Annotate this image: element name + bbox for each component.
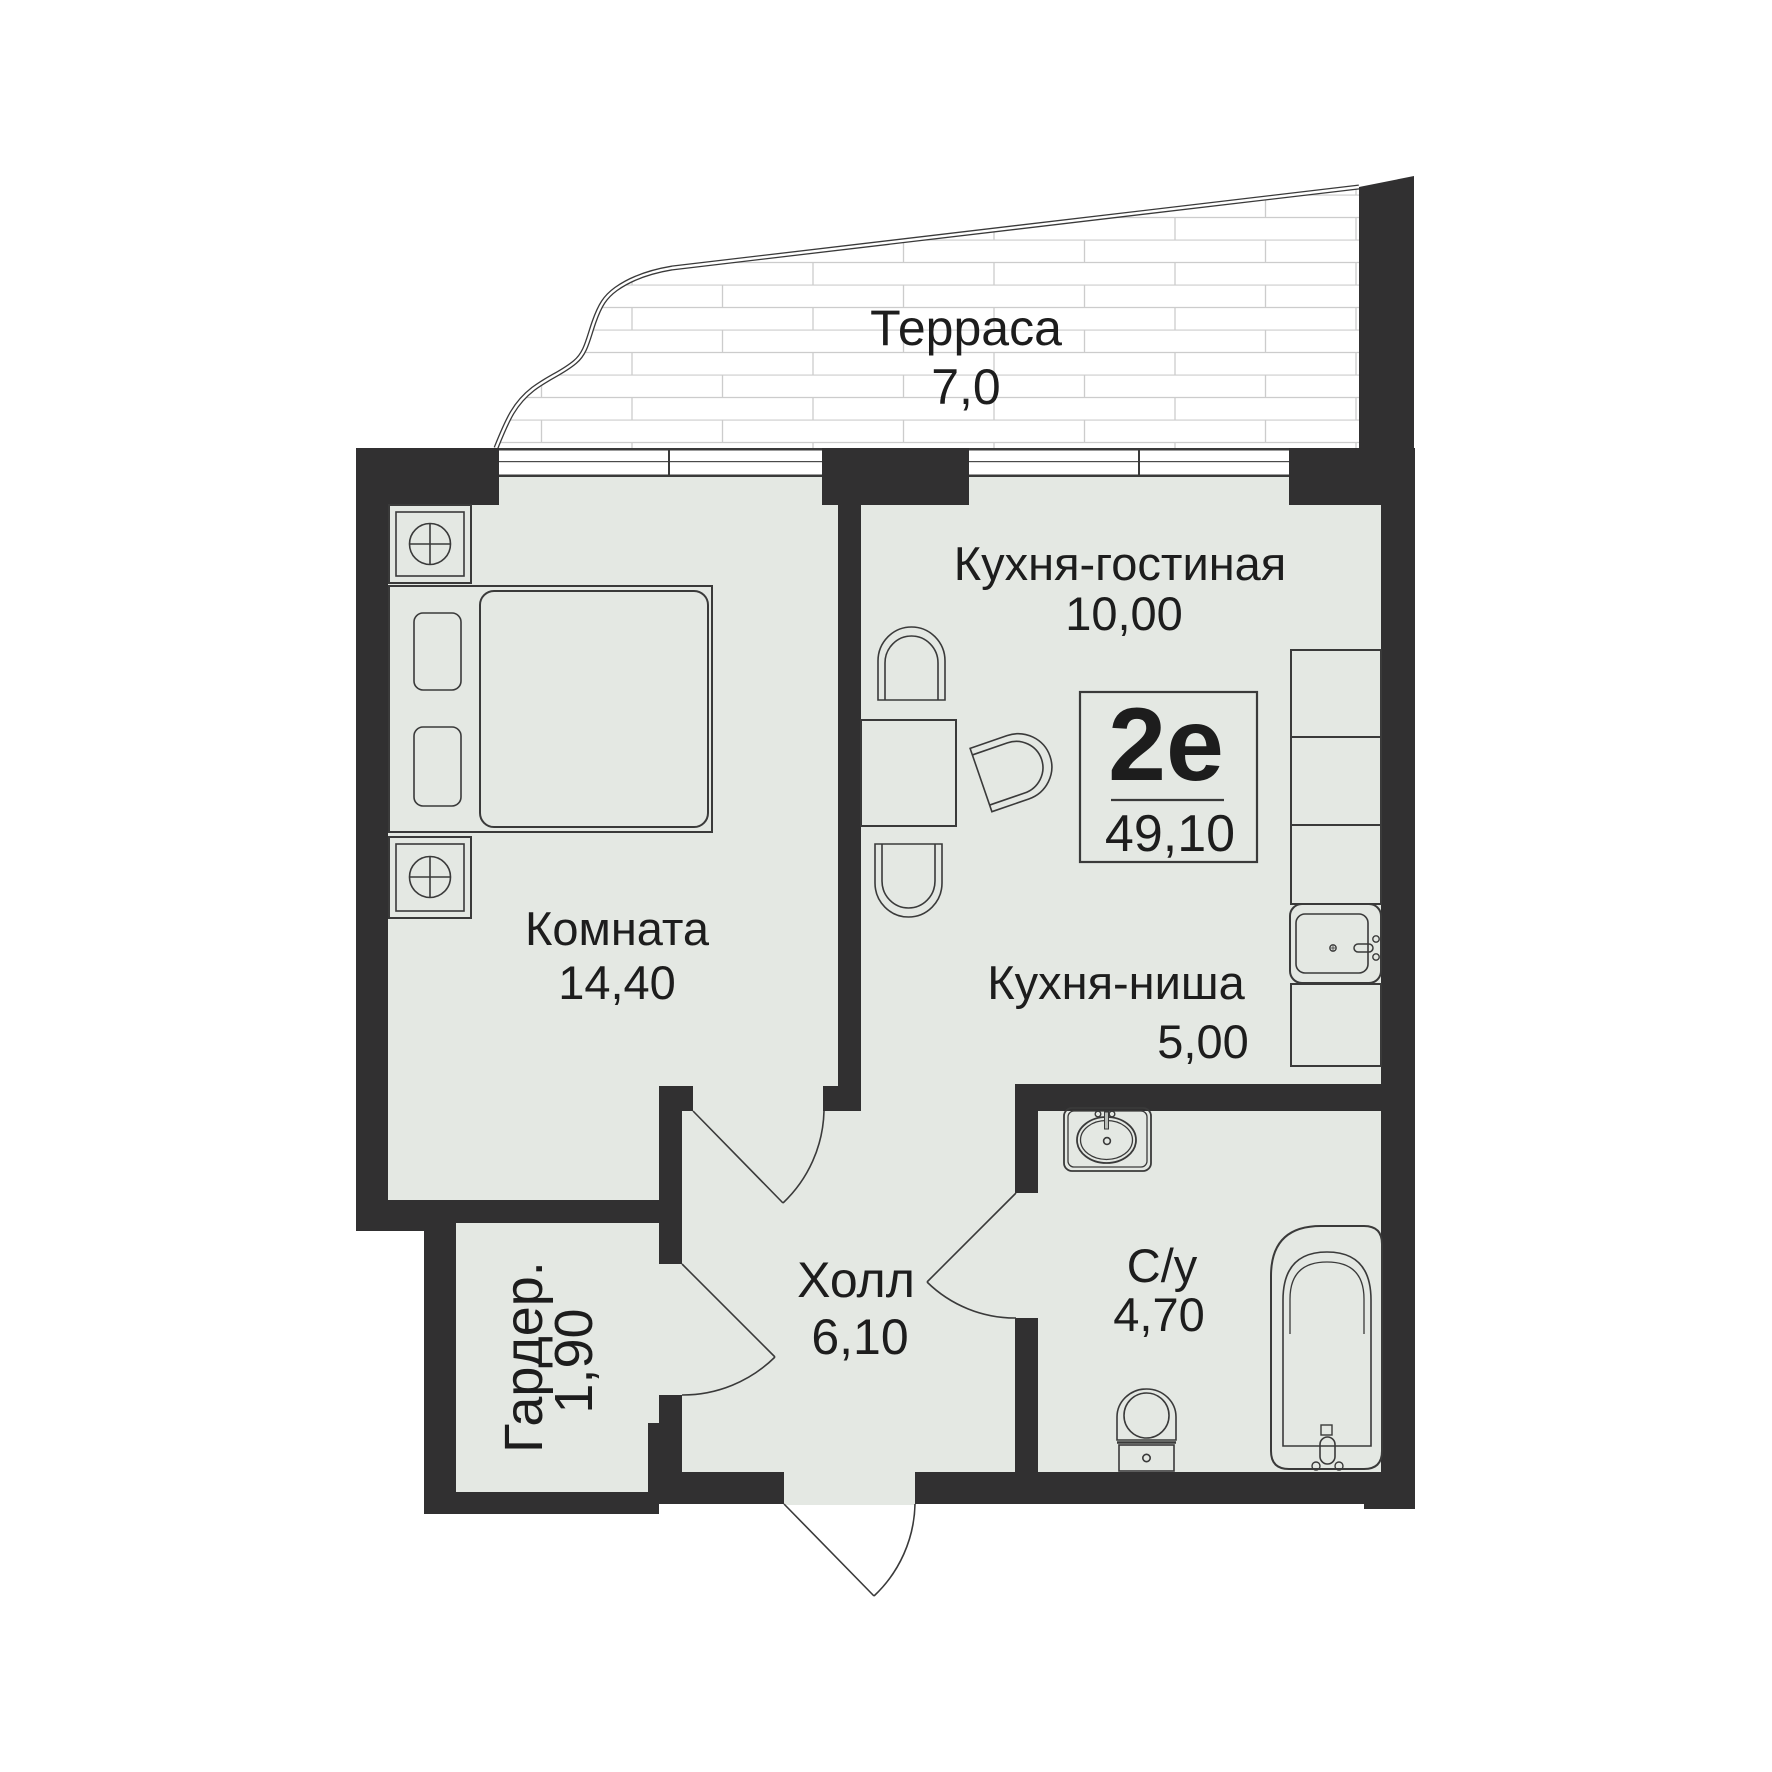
svg-text:6,10: 6,10 (811, 1309, 908, 1365)
svg-text:10,00: 10,00 (1065, 587, 1183, 640)
svg-text:1,90: 1,90 (544, 1308, 604, 1413)
svg-text:Холл: Холл (797, 1252, 915, 1308)
svg-text:14,40: 14,40 (558, 956, 676, 1009)
svg-text:5,00: 5,00 (1157, 1015, 1248, 1068)
svg-text:49,10: 49,10 (1105, 805, 1235, 863)
svg-text:Терраса: Терраса (870, 300, 1062, 356)
svg-text:4,70: 4,70 (1113, 1288, 1204, 1341)
svg-text:Кухня-ниша: Кухня-ниша (987, 956, 1245, 1009)
svg-text:Кухня-гостиная: Кухня-гостиная (954, 537, 1287, 590)
svg-text:2е: 2е (1108, 687, 1224, 803)
svg-text:Комната: Комната (525, 902, 710, 955)
svg-text:С/у: С/у (1127, 1239, 1198, 1292)
svg-text:7,0: 7,0 (931, 359, 1001, 415)
